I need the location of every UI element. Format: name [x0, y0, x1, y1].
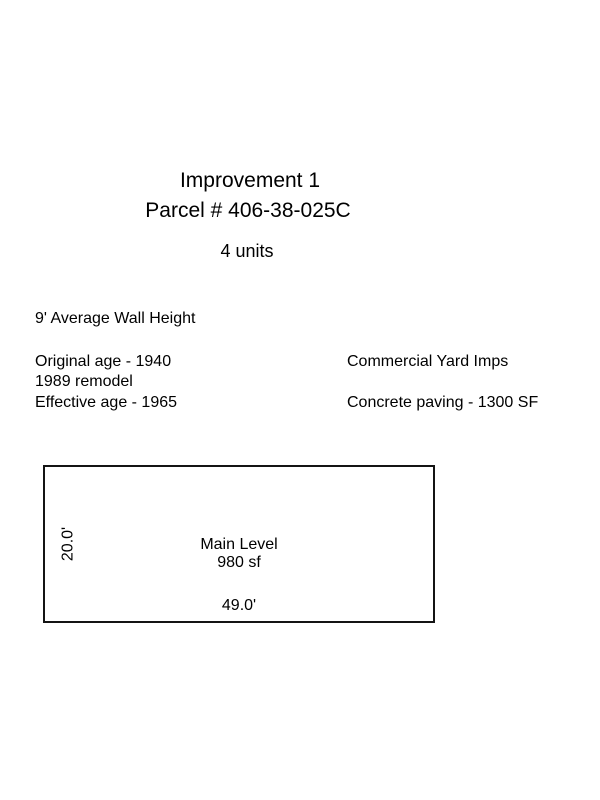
- concrete-paving-line: Concrete paving - 1300 SF: [347, 393, 538, 413]
- level-label: Main Level: [41, 536, 437, 554]
- remodel-line: 1989 remodel: [35, 372, 177, 392]
- improvement-record-page: Improvement 1 Parcel # 406-38-025C 4 uni…: [0, 0, 600, 800]
- yard-improvements-heading: Commercial Yard Imps: [347, 352, 508, 372]
- age-details: Original age - 1940 1989 remodel Effecti…: [35, 352, 177, 413]
- original-age-line: Original age - 1940: [35, 352, 177, 372]
- sketch-labels: Main Level 980 sf: [41, 536, 437, 571]
- wall-height-note: 9' Average Wall Height: [35, 309, 195, 328]
- area-label: 980 sf: [41, 554, 437, 572]
- width-dimension-label: 49.0': [41, 596, 437, 615]
- parcel-number: Parcel # 406-38-025C: [0, 199, 496, 223]
- units-count: 4 units: [0, 241, 494, 261]
- effective-age-line: Effective age - 1965: [35, 393, 177, 413]
- improvement-title: Improvement 1: [0, 169, 500, 193]
